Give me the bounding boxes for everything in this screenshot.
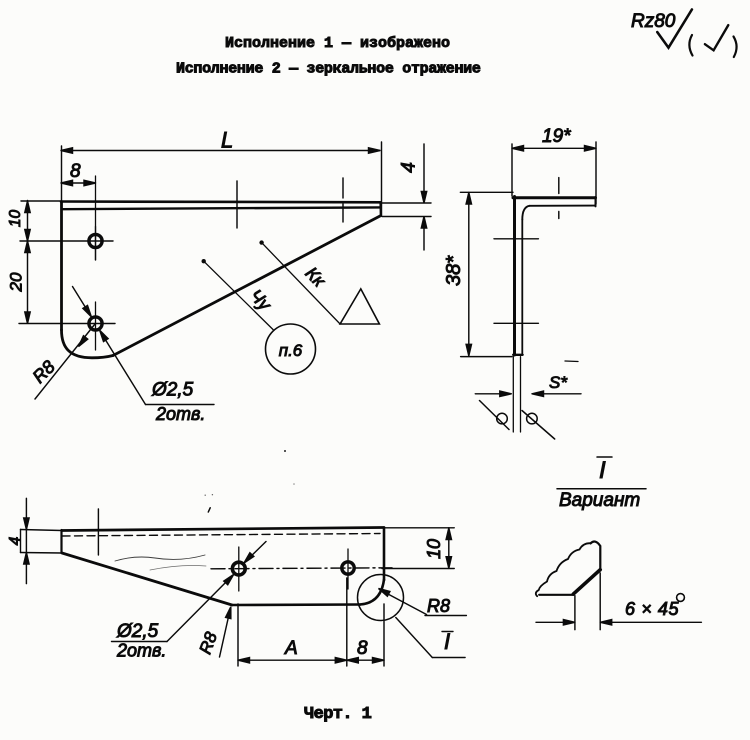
svg-text:Исполнение 2 — зеркальное отра: Исполнение 2 — зеркальное отражение [176,61,481,78]
svg-text:п.6: п.6 [279,341,303,360]
svg-text:2отв.: 2отв. [155,404,205,424]
svg-text:2отв.: 2отв. [116,641,166,661]
svg-text:10: 10 [7,210,24,228]
svg-text:Чу: Чу [246,285,276,315]
svg-text:19*: 19* [542,126,571,147]
svg-text:Черт. 1: Черт. 1 [304,705,372,724]
svg-text:A: A [284,638,298,659]
svg-text:R8: R8 [29,357,59,387]
svg-text:Кк: Кк [301,263,330,292]
svg-text:Ø2,5: Ø2,5 [151,380,194,401]
svg-text:I: I [599,457,606,484]
svg-text:4: 4 [399,162,420,173]
svg-text:Rz80: Rz80 [631,11,676,32]
svg-text:I: I [444,629,450,654]
svg-text:10: 10 [424,539,444,559]
svg-text:20: 20 [7,272,26,292]
svg-text:4: 4 [7,536,24,545]
svg-text:8: 8 [70,161,81,182]
svg-text:8: 8 [357,638,368,659]
svg-text:Исполнение 1 — изображено: Исполнение 1 — изображено [225,35,450,52]
svg-text:R8: R8 [196,629,221,656]
svg-text:R8: R8 [427,596,450,616]
svg-text:S*: S* [549,373,568,392]
svg-text:Вариант: Вариант [559,490,640,511]
svg-text:L: L [221,128,233,153]
svg-text:38*: 38* [443,255,465,286]
svg-text:6 × 45: 6 × 45 [625,599,680,619]
svg-text:Ø2,5: Ø2,5 [116,621,159,642]
